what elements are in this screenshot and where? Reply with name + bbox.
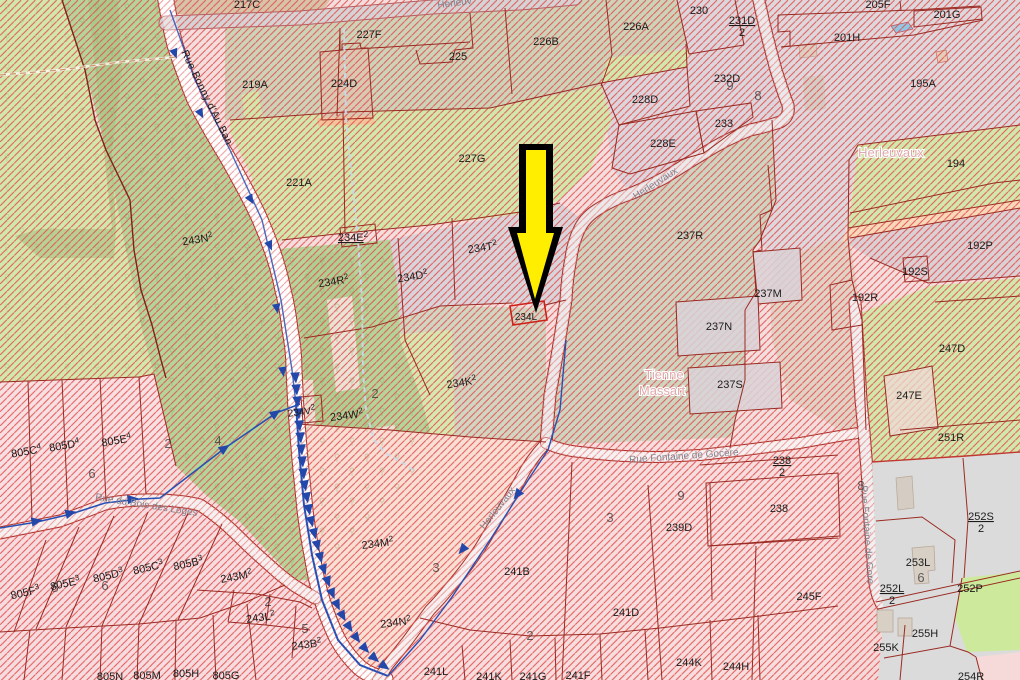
svg-text:805H: 805H (173, 668, 199, 680)
svg-text:Tienne: Tienne (644, 367, 683, 382)
svg-text:245F: 245F (796, 591, 821, 603)
svg-text:3: 3 (432, 560, 439, 575)
svg-text:237M: 237M (754, 288, 782, 300)
svg-text:221A: 221A (286, 177, 312, 189)
svg-text:8: 8 (754, 88, 761, 103)
svg-text:224D: 224D (331, 78, 357, 90)
svg-text:253L: 253L (906, 557, 930, 569)
svg-text:2: 2 (264, 594, 271, 609)
svg-text:192R: 192R (852, 292, 878, 304)
svg-text:238: 238 (770, 503, 788, 515)
svg-text:239D: 239D (666, 522, 692, 534)
svg-text:244K: 244K (676, 657, 702, 669)
svg-text:805M: 805M (133, 670, 161, 680)
svg-text:9: 9 (677, 488, 684, 503)
svg-text:237S: 237S (717, 379, 743, 391)
svg-text:Massart: Massart (639, 383, 686, 398)
svg-text:230: 230 (690, 5, 708, 17)
svg-text:2: 2 (371, 386, 378, 401)
svg-text:247D: 247D (939, 343, 965, 355)
svg-text:6: 6 (88, 466, 95, 481)
svg-text:252S: 252S (968, 511, 994, 523)
svg-text:234L: 234L (515, 312, 538, 323)
svg-text:254R: 254R (958, 671, 984, 680)
svg-text:201G: 201G (934, 9, 961, 21)
svg-text:237N: 237N (706, 321, 732, 333)
svg-text:195A: 195A (910, 78, 936, 90)
svg-text:241L: 241L (424, 666, 448, 678)
svg-text:231D: 231D (729, 15, 755, 27)
svg-text:233: 233 (715, 118, 733, 130)
svg-text:238: 238 (773, 455, 791, 467)
svg-text:241K: 241K (476, 671, 502, 680)
svg-text:3: 3 (606, 510, 613, 525)
svg-text:252P: 252P (957, 583, 983, 595)
svg-text:247E: 247E (896, 390, 922, 402)
svg-text:217C: 217C (234, 0, 260, 11)
svg-text:2: 2 (739, 27, 745, 39)
svg-text:2: 2 (526, 628, 533, 643)
svg-text:255H: 255H (912, 628, 938, 640)
svg-text:2: 2 (978, 523, 984, 535)
svg-text:201H: 201H (834, 32, 860, 44)
svg-text:227G: 227G (459, 153, 486, 165)
svg-text:252L: 252L (880, 583, 904, 595)
svg-text:194: 194 (947, 158, 965, 170)
svg-text:8: 8 (51, 580, 58, 595)
svg-text:228E: 228E (650, 138, 676, 150)
svg-text:241B: 241B (504, 566, 530, 578)
svg-text:205F: 205F (865, 0, 890, 11)
svg-text:4: 4 (214, 433, 221, 448)
svg-text:228D: 228D (632, 94, 658, 106)
svg-text:6: 6 (917, 570, 924, 585)
svg-text:805N: 805N (97, 671, 123, 680)
svg-text:241D: 241D (613, 607, 639, 619)
svg-text:9: 9 (726, 78, 733, 93)
svg-text:219A: 219A (242, 79, 268, 91)
svg-text:Herleuvaux: Herleuvaux (858, 145, 924, 160)
svg-text:6: 6 (101, 578, 108, 593)
svg-text:244H: 244H (723, 661, 749, 673)
svg-text:251R: 251R (938, 432, 964, 444)
svg-text:2: 2 (164, 436, 171, 451)
svg-text:241F: 241F (565, 670, 590, 680)
svg-text:2: 2 (889, 595, 895, 607)
svg-text:192P: 192P (967, 240, 993, 252)
svg-text:2: 2 (779, 467, 785, 479)
svg-text:225: 225 (449, 51, 467, 63)
svg-text:227F: 227F (356, 29, 381, 41)
svg-text:192S: 192S (902, 266, 928, 278)
svg-text:5: 5 (301, 621, 308, 636)
svg-text:237R: 237R (677, 230, 703, 242)
svg-text:255K: 255K (873, 642, 899, 654)
svg-text:226B: 226B (533, 36, 559, 48)
svg-text:226A: 226A (623, 21, 649, 33)
svg-text:241G: 241G (520, 671, 547, 680)
svg-text:805G: 805G (213, 670, 240, 680)
